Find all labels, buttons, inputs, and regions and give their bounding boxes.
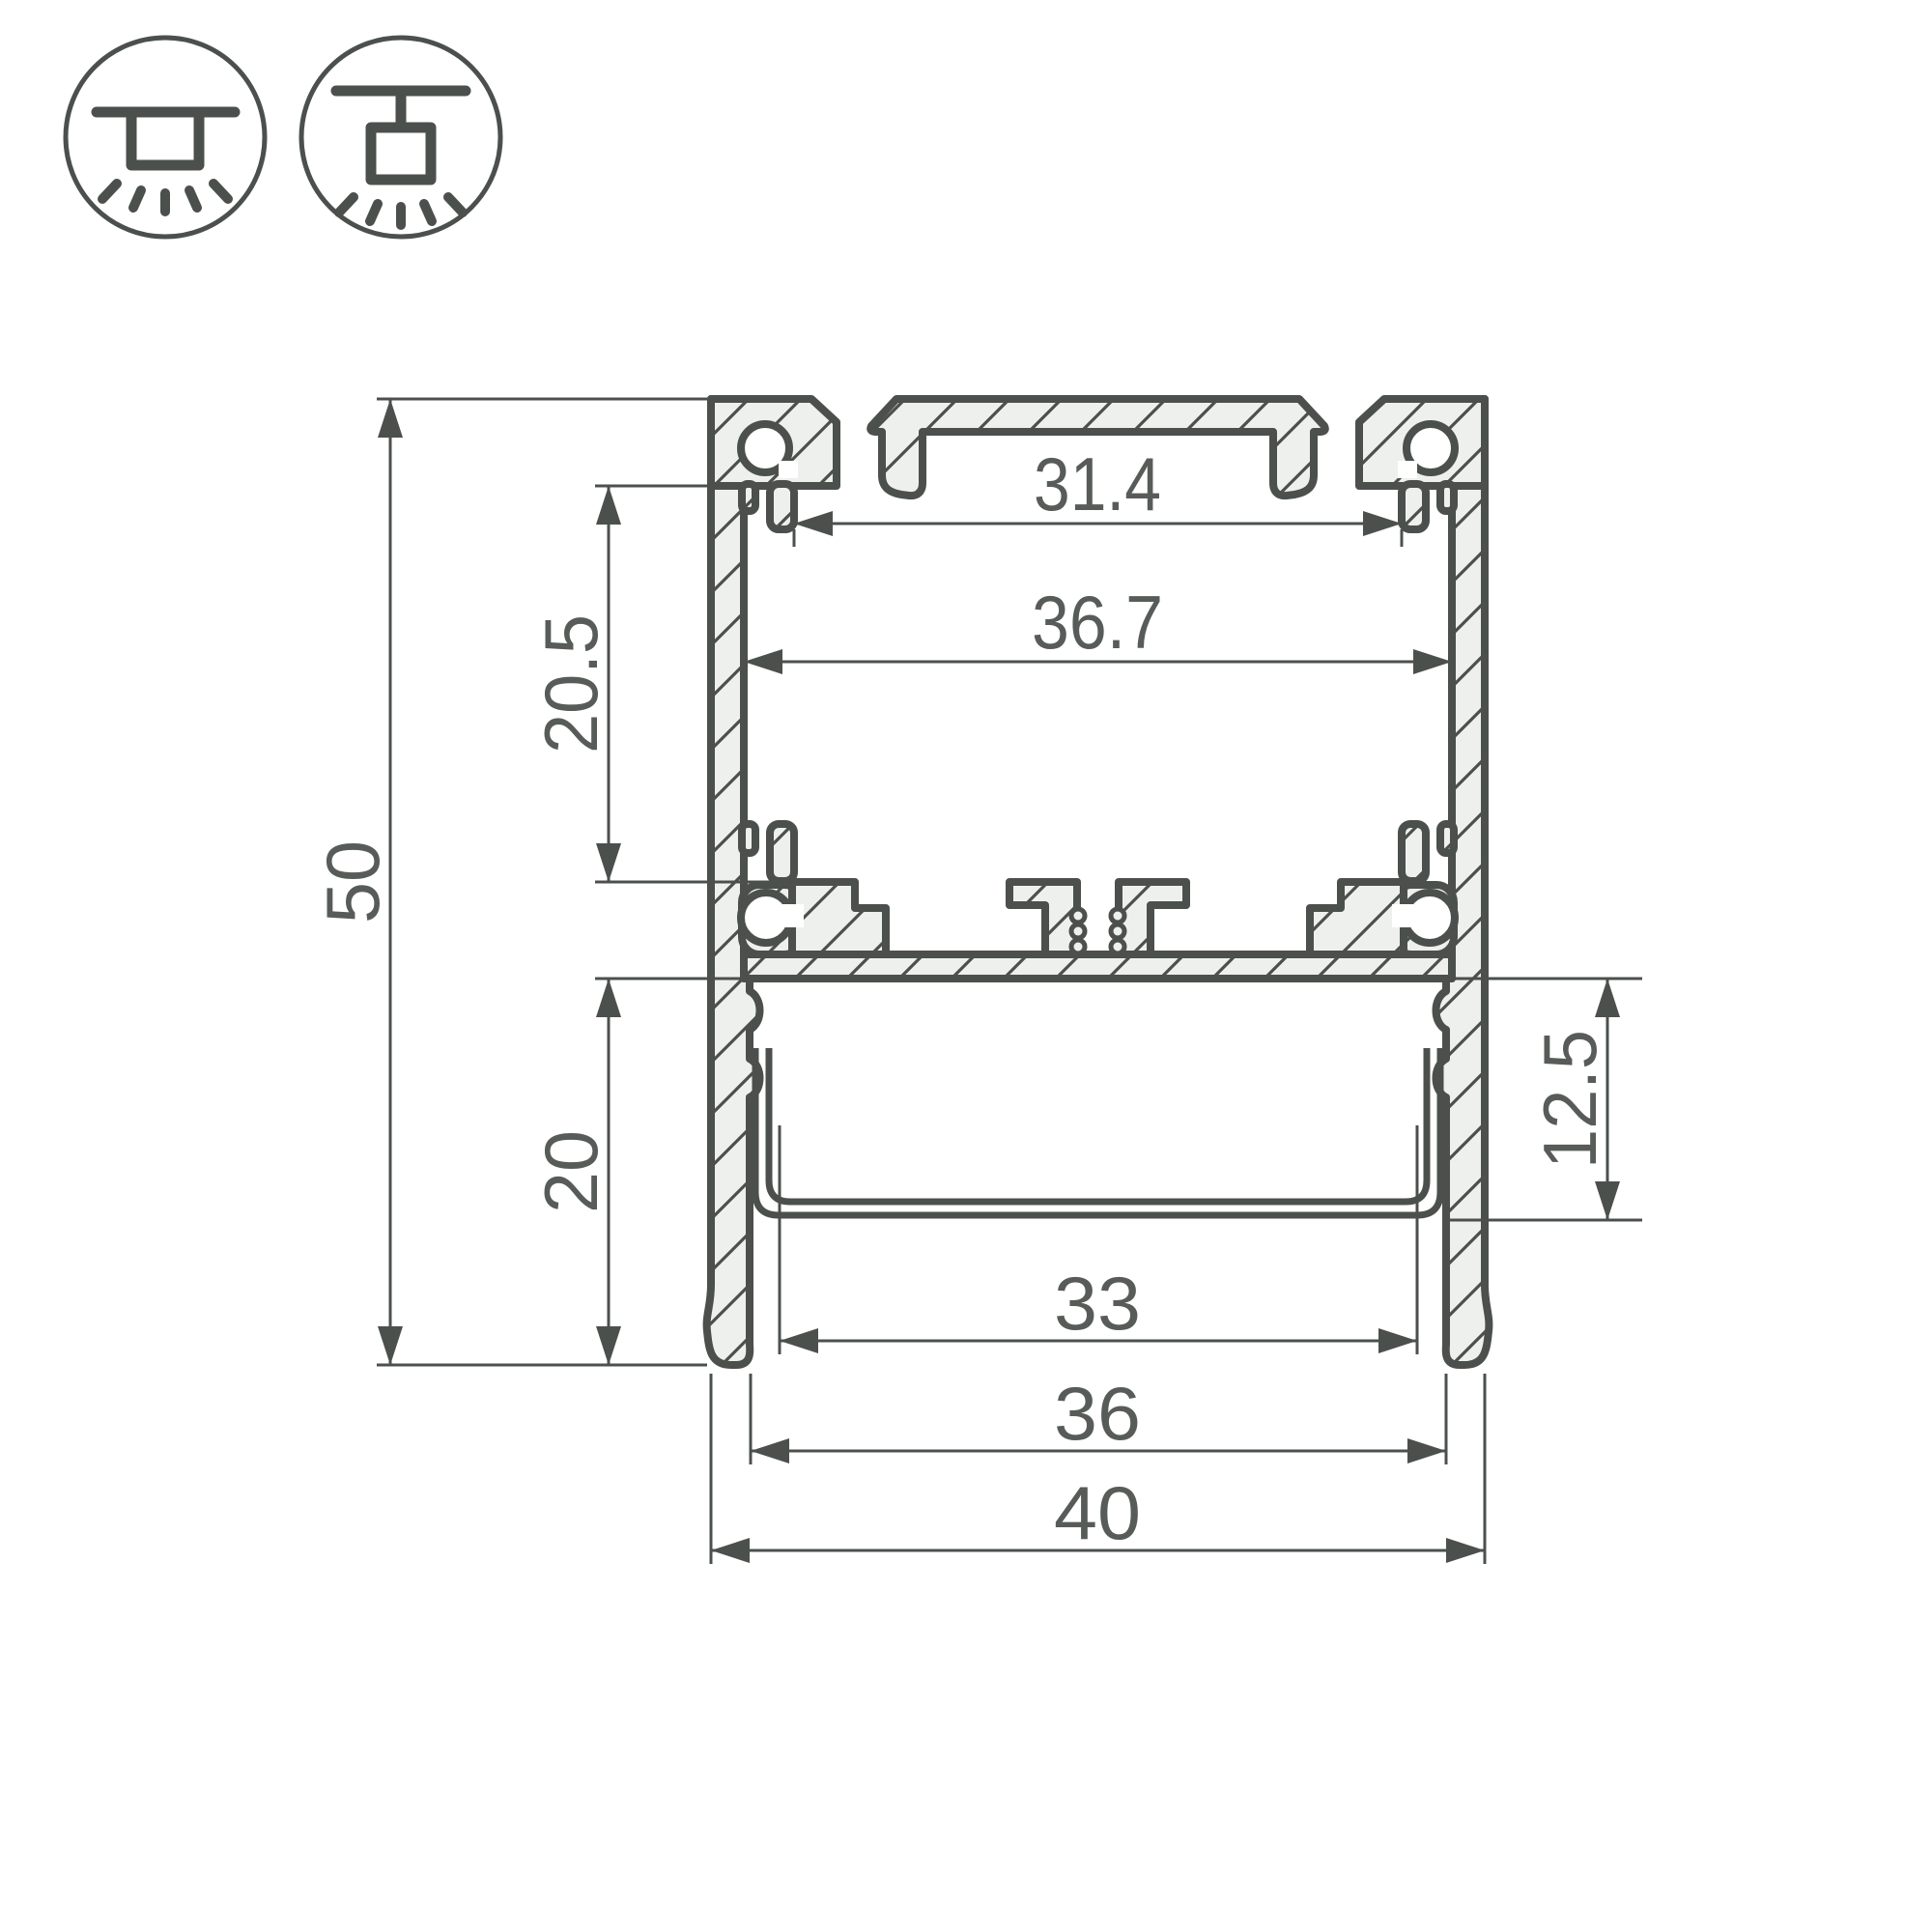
lower-snap-hook-right xyxy=(1402,824,1426,881)
upper-snap-hook-right xyxy=(1402,484,1426,529)
lower-snap-hook-left-stub xyxy=(742,824,755,853)
diffuser-outer-shell xyxy=(755,1048,1440,1215)
dim-label-50: 50 xyxy=(310,840,395,923)
dim-label-31-4: 31.4 xyxy=(1034,441,1161,526)
profile-drawing-svg: 31.4 36.7 50 20.5 xyxy=(0,0,1932,1932)
pendant-ceiling-mount-luminaire-icon xyxy=(301,38,500,237)
upper-snap-hook-right-stub xyxy=(1440,484,1454,511)
lamp-box xyxy=(371,128,431,180)
dim-inner-width: 36.7 xyxy=(744,580,1452,674)
lower-snap-hook-right-stub xyxy=(1440,824,1454,853)
diffuser xyxy=(755,1048,1440,1215)
partition-lip-right xyxy=(1310,882,1404,954)
screw-hole-opening xyxy=(782,904,804,927)
dim-diffuser-width: 33 xyxy=(780,1125,1417,1354)
screw-post-left xyxy=(1009,882,1077,954)
dim-label-36: 36 xyxy=(1054,1371,1141,1456)
surface-ceiling-mount-luminaire-icon xyxy=(66,38,265,237)
partition-lip-left xyxy=(792,882,886,954)
upper-snap-hook-left-stub xyxy=(742,484,755,511)
dim-label-36-7: 36.7 xyxy=(1032,580,1163,665)
drawing-canvas: 31.4 36.7 50 20.5 xyxy=(0,0,1932,1932)
light-rays xyxy=(339,197,463,225)
lower-snap-hook-left xyxy=(770,824,794,881)
lamp-box xyxy=(131,112,199,165)
dim-label-33: 33 xyxy=(1054,1261,1141,1346)
screw-hole-opening xyxy=(1398,461,1417,478)
dim-label-20: 20 xyxy=(528,1130,613,1213)
light-rays xyxy=(102,184,228,212)
dim-label-20-5: 20.5 xyxy=(528,614,613,753)
screw-post-right xyxy=(1119,882,1186,954)
dim-bottom-inner-width: 36 xyxy=(751,1371,1446,1464)
screw-hole-opening xyxy=(779,461,798,478)
diffuser-inner-shell xyxy=(769,1048,1427,1202)
dim-label-40: 40 xyxy=(1054,1470,1141,1555)
upper-snap-hook-left xyxy=(770,484,794,529)
dim-label-12-5: 12.5 xyxy=(1527,1030,1612,1169)
screw-channel-serrations xyxy=(1071,909,1124,953)
screw-hole-opening xyxy=(1392,904,1413,927)
